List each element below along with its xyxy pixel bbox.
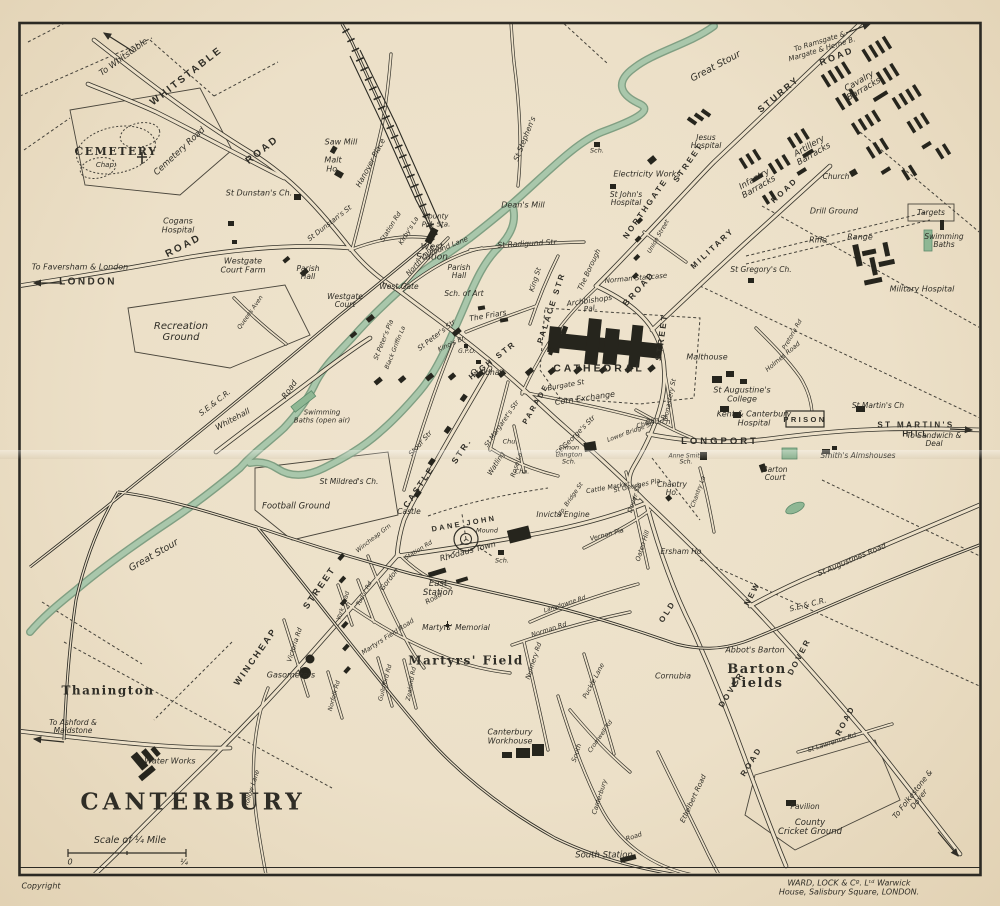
targets-marker bbox=[940, 220, 944, 230]
workhouse-building bbox=[516, 748, 530, 758]
infantry-artillery-buildings bbox=[739, 121, 828, 205]
st-dunstans-church bbox=[294, 194, 301, 200]
east-station-building bbox=[428, 567, 447, 577]
cemetery-cross-icon bbox=[137, 152, 147, 164]
electricity-works-building bbox=[647, 155, 657, 165]
swimming-baths-pool bbox=[924, 230, 932, 251]
invicta-engine-building bbox=[507, 526, 531, 544]
cavalry-barracks-buildings bbox=[821, 36, 957, 190]
st-gregorys-church bbox=[748, 278, 754, 283]
scale-bar bbox=[68, 849, 186, 857]
barracks-church bbox=[849, 168, 858, 177]
map-canvas bbox=[0, 0, 1000, 906]
railway-sleepers bbox=[342, 24, 434, 236]
military-hospital-buildings bbox=[852, 237, 898, 286]
pavilion-building bbox=[786, 800, 796, 806]
cemetery-paths bbox=[72, 119, 162, 181]
gasometer-icon bbox=[299, 667, 311, 679]
railway-lines bbox=[30, 24, 982, 878]
roads-fill bbox=[18, 6, 982, 890]
south-station-building bbox=[620, 854, 637, 863]
prison-box bbox=[786, 411, 824, 427]
longport-green bbox=[782, 448, 797, 459]
barton-pond bbox=[784, 500, 806, 517]
martyrs-memorial-icon bbox=[444, 621, 451, 630]
vintage-canterbury-map: { "map": { "title": "CANTERBURY", "scale… bbox=[0, 0, 1000, 906]
gasometer-icon bbox=[306, 655, 315, 664]
st-martins-church bbox=[856, 406, 865, 412]
west-station-building bbox=[425, 227, 439, 244]
roads-casing bbox=[18, 6, 982, 890]
direction-arrows bbox=[34, 24, 972, 856]
